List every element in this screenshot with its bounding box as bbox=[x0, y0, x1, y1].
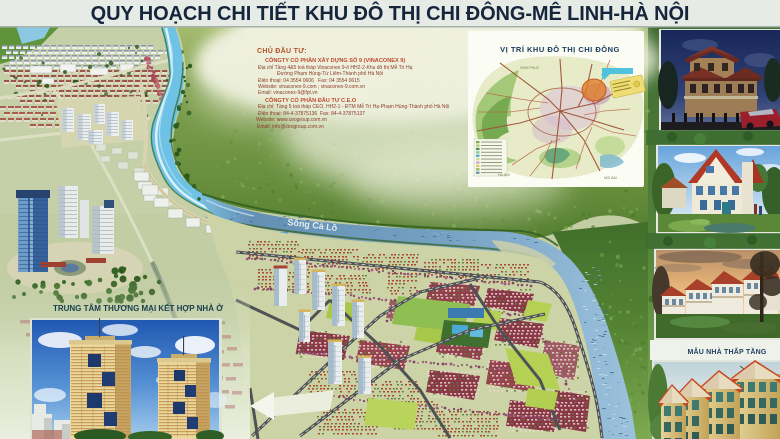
svg-text:CÔNGTY CỔ PHẦN XÂY DỰNG SỐ 9 (: CÔNGTY CỔ PHẦN XÂY DỰNG SỐ 9 (VINACONEX … bbox=[265, 56, 405, 64]
svg-text:VỊ TRÍ KHU ĐÔ THỊ CHI ĐÔNG: VỊ TRÍ KHU ĐÔ THỊ CHI ĐÔNG bbox=[500, 45, 620, 54]
svg-text:HA NOI: HA NOI bbox=[498, 173, 510, 177]
svg-text:CÔNGTY CỔ PHẦN ĐẦU TƯ C.E.O: CÔNGTY CỔ PHẦN ĐẦU TƯ C.E.O bbox=[265, 96, 357, 104]
svg-text:NOI BAI: NOI BAI bbox=[604, 176, 617, 180]
svg-text:Địa chỉ Tầng 4&5 toà tháp Vina: Địa chỉ Tầng 4&5 toà tháp Vinaconex 9-ô … bbox=[258, 64, 413, 71]
svg-text:Địa chỉ: Tầng 5 toà tháp CEO,: Địa chỉ: Tầng 5 toà tháp CEO, HH2-1 - ĐT… bbox=[258, 103, 449, 110]
svg-text:Đường Phạm Hùng-Từ Liêm-Thành: Đường Phạm Hùng-Từ Liêm-Thành phố Hà Nội bbox=[277, 71, 383, 77]
svg-text:QUY HOẠCH CHI TIẾT KHU ĐÔ THỊ: QUY HOẠCH CHI TIẾT KHU ĐÔ THỊ CHI ĐÔNG-M… bbox=[91, 1, 690, 25]
svg-text:Email: info@ceogroup.com.vn: Email: info@ceogroup.com.vn bbox=[257, 124, 324, 130]
svg-text:TRUNG TÂM THƯƠNG MẠI KẾT HỢP N: TRUNG TÂM THƯƠNG MẠI KẾT HỢP NHÀ Ở bbox=[53, 303, 223, 313]
svg-text:VINH PHUC: VINH PHUC bbox=[520, 66, 540, 70]
svg-text:Email: vinaconex-9@fpt.vn: Email: vinaconex-9@fpt.vn bbox=[258, 90, 318, 96]
svg-text:Website: www.ceogroup.com.vn: Website: www.ceogroup.com.vn bbox=[256, 117, 327, 123]
